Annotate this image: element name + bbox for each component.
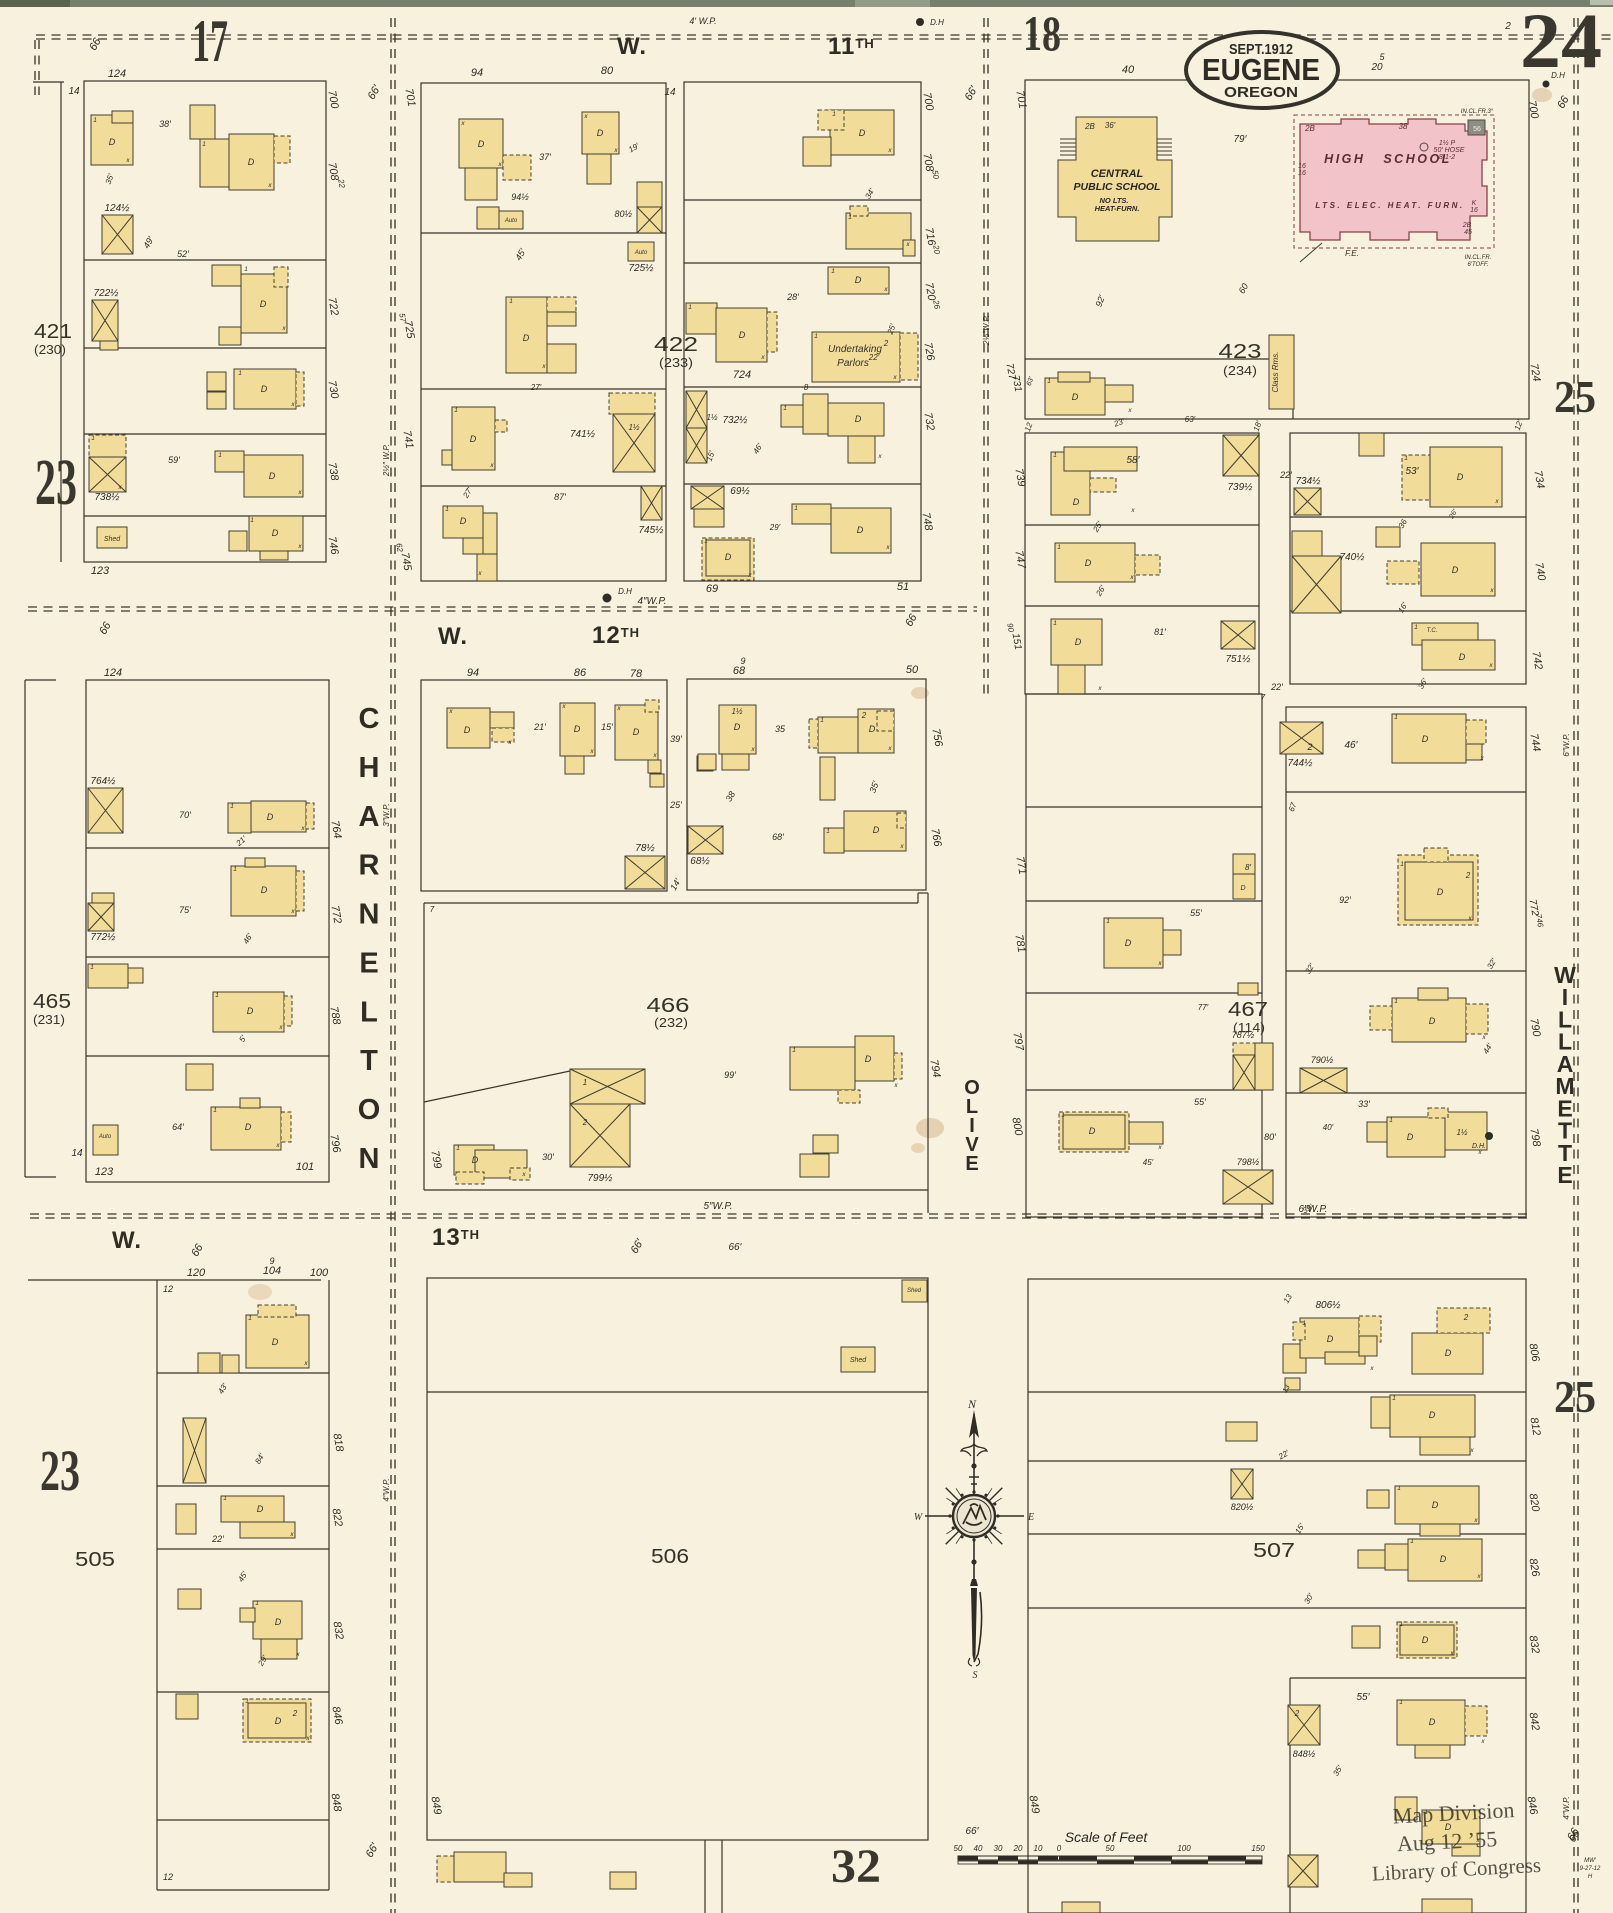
svg-text:6′TOFF.: 6′TOFF. [1468, 262, 1489, 268]
svg-text:D: D [1459, 652, 1466, 662]
svg-text:46′: 46′ [1345, 740, 1359, 751]
svg-text:20: 20 [1370, 62, 1383, 73]
svg-text:D: D [855, 414, 862, 424]
svg-text:53′: 53′ [1406, 466, 1420, 477]
svg-text:1: 1 [90, 964, 94, 971]
svg-text:69½: 69½ [730, 486, 750, 497]
svg-text:79′: 79′ [1234, 134, 1248, 145]
svg-text:1: 1 [704, 538, 708, 545]
svg-text:1: 1 [1404, 455, 1408, 462]
svg-text:1: 1 [223, 1495, 227, 1502]
svg-text:2: 2 [292, 1709, 298, 1718]
svg-text:OREGON: OREGON [1224, 84, 1298, 101]
svg-text:68′: 68′ [772, 832, 784, 842]
svg-text:Shed: Shed [850, 1357, 867, 1364]
svg-text:IN.CL.FR.3°: IN.CL.FR.3° [1461, 109, 1494, 115]
svg-text:22′: 22′ [868, 353, 880, 362]
svg-text:68: 68 [733, 665, 746, 677]
svg-text:F.E.: F.E. [1345, 249, 1359, 258]
svg-text:124½: 124½ [104, 203, 130, 214]
svg-text:80: 80 [601, 65, 614, 77]
svg-text:51: 51 [897, 581, 909, 593]
svg-text:1: 1 [848, 214, 852, 221]
svg-text:PUBLIC SCHOOL: PUBLIC SCHOOL [1074, 181, 1161, 193]
svg-text:22′: 22′ [1270, 682, 1283, 692]
svg-text:2: 2 [1504, 21, 1511, 32]
svg-text:D: D [109, 137, 116, 147]
svg-text:(233): (233) [659, 355, 693, 370]
svg-text:D: D [472, 1155, 479, 1165]
svg-text:422: 422 [654, 334, 698, 356]
svg-text:1: 1 [250, 517, 254, 524]
svg-text:2: 2 [1463, 1313, 1469, 1322]
svg-text:1: 1 [820, 717, 824, 724]
svg-text:35: 35 [775, 724, 786, 734]
svg-text:78½: 78½ [635, 843, 655, 854]
svg-text:741½: 741½ [570, 429, 596, 440]
svg-text:8′: 8′ [1245, 863, 1251, 872]
svg-text:55′: 55′ [1190, 908, 1202, 918]
svg-text:W.: W. [112, 1227, 142, 1254]
svg-text:12: 12 [163, 1872, 173, 1882]
svg-text:78: 78 [630, 668, 643, 680]
svg-text:Class Rms.: Class Rms. [1271, 352, 1280, 393]
svg-text:86: 86 [574, 667, 587, 679]
svg-text:N: N [359, 899, 380, 931]
svg-text:1: 1 [244, 266, 248, 273]
svg-text:2½″W.P.: 2½″W.P. [982, 315, 991, 346]
svg-text:D: D [1075, 637, 1082, 647]
svg-text:D: D [1240, 885, 1245, 892]
svg-text:L: L [360, 996, 378, 1028]
svg-text:1: 1 [832, 111, 836, 118]
svg-text:38′: 38′ [159, 119, 171, 129]
svg-text:D: D [247, 1006, 254, 1016]
svg-text:1: 1 [218, 452, 222, 459]
svg-text:1: 1 [1394, 714, 1398, 721]
svg-text:D: D [734, 722, 741, 732]
svg-text:1: 1 [213, 1107, 217, 1114]
svg-text:D: D [574, 724, 581, 734]
svg-text:D: D [1072, 392, 1079, 402]
svg-text:40′: 40′ [1323, 1123, 1334, 1132]
svg-text:29′: 29′ [769, 523, 781, 532]
svg-text:EUGENE: EUGENE [1202, 52, 1320, 87]
svg-text:1: 1 [255, 1600, 259, 1607]
svg-text:87′: 87′ [554, 492, 566, 502]
svg-text:D: D [261, 885, 268, 895]
svg-text:Auto: Auto [634, 250, 648, 256]
svg-text:466: 466 [647, 995, 690, 1017]
svg-text:104: 104 [263, 1265, 281, 1277]
svg-text:D: D [478, 139, 485, 149]
svg-text:14: 14 [71, 1148, 83, 1159]
svg-text:1: 1 [1057, 544, 1061, 551]
svg-text:421: 421 [34, 321, 72, 343]
svg-text:2B: 2B [1084, 122, 1095, 131]
svg-text:15′: 15′ [601, 722, 613, 732]
svg-text:1: 1 [215, 992, 219, 999]
svg-text:806½: 806½ [1315, 1300, 1341, 1311]
svg-text:1: 1 [456, 1145, 460, 1152]
svg-text:39′: 39′ [670, 734, 682, 744]
svg-text:1½: 1½ [706, 413, 717, 422]
svg-text:16: 16 [1298, 163, 1306, 170]
svg-text:1: 1 [1053, 620, 1057, 627]
svg-text:O: O [358, 1094, 381, 1126]
svg-text:E: E [1557, 1162, 1572, 1188]
svg-text:25′: 25′ [669, 800, 682, 810]
svg-text:D: D [275, 1716, 282, 1726]
svg-text:124: 124 [108, 68, 126, 80]
svg-text:T.C.: T.C. [1427, 628, 1438, 634]
svg-text:77′: 77′ [1198, 1003, 1209, 1012]
svg-text:1: 1 [1053, 452, 1057, 459]
svg-text:1: 1 [814, 333, 818, 340]
svg-text:80′: 80′ [1264, 1132, 1276, 1142]
svg-text:D: D [865, 1054, 872, 1064]
svg-text:D: D [1445, 1348, 1452, 1358]
svg-text:HEAT-FURN.: HEAT-FURN. [1095, 204, 1140, 213]
svg-text:H: H [359, 752, 380, 784]
svg-text:94: 94 [467, 667, 479, 679]
svg-text:(231): (231) [33, 1012, 65, 1027]
svg-text:22′: 22′ [1279, 470, 1292, 480]
svg-text:D: D [597, 128, 604, 138]
svg-text:745½: 745½ [638, 525, 664, 536]
svg-text:45′: 45′ [1143, 1158, 1154, 1167]
svg-text:D: D [523, 333, 530, 343]
svg-text:7: 7 [430, 905, 435, 914]
svg-text:75′: 75′ [179, 905, 191, 915]
svg-text:69: 69 [706, 583, 718, 595]
svg-text:1: 1 [1399, 1699, 1403, 1706]
svg-text:56: 56 [1473, 126, 1481, 133]
svg-text:D: D [859, 128, 866, 138]
svg-text:W.: W. [617, 33, 647, 60]
svg-text:1: 1 [1302, 1320, 1306, 1327]
svg-text:798½: 798½ [1237, 1157, 1260, 1167]
svg-text:23: 23 [40, 1438, 80, 1503]
svg-text:Auto: Auto [98, 1134, 112, 1140]
svg-text:80½: 80½ [614, 209, 632, 219]
svg-text:848½: 848½ [1293, 1749, 1316, 1759]
svg-text:MW′: MW′ [1584, 1858, 1597, 1864]
svg-text:0: 0 [1057, 1844, 1062, 1853]
svg-text:1: 1 [1106, 918, 1110, 925]
svg-text:17: 17 [192, 8, 228, 74]
svg-text:10: 10 [1034, 1844, 1043, 1853]
svg-text:D: D [260, 299, 267, 309]
svg-text:D: D [257, 1504, 264, 1514]
svg-text:33′: 33′ [1358, 1099, 1370, 1109]
svg-text:12: 12 [163, 1284, 173, 1294]
svg-text:A: A [359, 801, 380, 833]
svg-text:18: 18 [1023, 5, 1061, 61]
svg-text:D: D [464, 725, 471, 735]
svg-text:(232): (232) [654, 1015, 688, 1030]
svg-text:D: D [1429, 1410, 1436, 1420]
svg-text:D: D [272, 1337, 279, 1347]
svg-text:1: 1 [826, 828, 830, 835]
svg-text:6″W.P.: 6″W.P. [1562, 733, 1571, 756]
svg-text:N: N [359, 1143, 380, 1175]
svg-text:Parlors: Parlors [837, 358, 869, 369]
svg-text:2: 2 [883, 339, 889, 348]
svg-text:1: 1 [792, 1047, 796, 1054]
svg-text:D: D [1089, 1126, 1096, 1136]
svg-text:D: D [1452, 565, 1459, 575]
svg-text:2: 2 [1465, 871, 1471, 880]
svg-text:9-27-12: 9-27-12 [1580, 1866, 1601, 1872]
svg-text:5″W.P.: 5″W.P. [703, 1201, 732, 1212]
svg-text:1: 1 [248, 1315, 252, 1322]
svg-text:D: D [272, 528, 279, 538]
svg-text:1: 1 [91, 435, 95, 442]
svg-text:467: 467 [1228, 999, 1268, 1021]
svg-text:D: D [269, 471, 276, 481]
svg-text:70′: 70′ [179, 810, 191, 820]
svg-text:4″W.P.: 4″W.P. [382, 1478, 391, 1501]
svg-text:H: H [1588, 1874, 1593, 1880]
svg-text:790½: 790½ [1311, 1055, 1334, 1065]
svg-text:8: 8 [804, 383, 809, 392]
svg-text:2B: 2B [1304, 124, 1315, 133]
svg-text:32: 32 [831, 1840, 881, 1893]
svg-text:725½: 725½ [628, 263, 654, 274]
svg-text:D: D [248, 157, 255, 167]
svg-text:1: 1 [1424, 1809, 1428, 1816]
svg-text:45: 45 [1464, 229, 1472, 236]
svg-text:55′: 55′ [1194, 1097, 1206, 1107]
svg-text:3″W.P.: 3″W.P. [382, 803, 391, 826]
svg-text:101: 101 [296, 1161, 314, 1173]
svg-text:4″W.P.: 4″W.P. [1562, 1796, 1571, 1819]
svg-text:N: N [967, 1397, 977, 1411]
svg-text:1: 1 [831, 268, 835, 275]
svg-text:772½: 772½ [90, 932, 116, 943]
svg-text:68½: 68½ [690, 856, 710, 867]
svg-text:506: 506 [651, 1546, 689, 1568]
svg-text:66′: 66′ [729, 1242, 743, 1253]
svg-text:(230): (230) [34, 342, 66, 357]
svg-text:D: D [869, 724, 876, 734]
svg-text:(234): (234) [1223, 363, 1257, 378]
svg-text:1: 1 [688, 304, 692, 311]
svg-text:1: 1 [1397, 1485, 1401, 1492]
svg-text:38: 38 [1399, 122, 1408, 131]
svg-text:1½: 1½ [731, 707, 742, 716]
svg-text:1: 1 [1392, 1395, 1396, 1402]
svg-text:T: T [360, 1045, 378, 1077]
svg-text:4″W.P.: 4″W.P. [637, 596, 666, 607]
svg-text:120: 120 [187, 1267, 206, 1279]
svg-text:D: D [633, 727, 640, 737]
svg-text:16: 16 [1298, 170, 1306, 177]
svg-text:30: 30 [994, 1844, 1003, 1853]
svg-text:820½: 820½ [1231, 1502, 1254, 1512]
svg-text:27′: 27′ [530, 383, 542, 392]
svg-text:D: D [1125, 938, 1132, 948]
svg-text:E: E [1027, 1512, 1034, 1523]
svg-text:1: 1 [1410, 1538, 1414, 1545]
svg-text:D: D [1429, 1016, 1436, 1026]
svg-text:D: D [873, 825, 880, 835]
svg-text:94: 94 [471, 67, 483, 79]
svg-text:2: 2 [1306, 742, 1312, 752]
svg-text:1: 1 [783, 405, 787, 412]
svg-text:7: 7 [1261, 693, 1266, 702]
svg-text:55′: 55′ [1357, 1692, 1371, 1703]
svg-text:1½ P: 1½ P [1439, 139, 1456, 147]
svg-text:Shed: Shed [104, 536, 121, 543]
svg-text:739½: 739½ [1227, 482, 1253, 493]
svg-text:1: 1 [1414, 624, 1418, 631]
svg-text:66′: 66′ [966, 1826, 980, 1837]
svg-text:D: D [245, 1122, 252, 1132]
svg-text:734½: 734½ [1295, 476, 1321, 487]
svg-text:1: 1 [238, 370, 242, 377]
svg-text:37′: 37′ [539, 152, 551, 162]
svg-text:1½: 1½ [628, 423, 639, 432]
svg-text:1: 1 [1389, 1117, 1393, 1124]
svg-text:2: 2 [861, 711, 867, 720]
svg-text:1: 1 [1400, 861, 1404, 868]
svg-text:1: 1 [233, 866, 237, 873]
svg-text:Scale of Feet: Scale of Feet [1065, 1829, 1149, 1845]
svg-text:123: 123 [91, 565, 110, 577]
svg-text:D: D [1437, 887, 1444, 897]
svg-text:100: 100 [310, 1267, 329, 1279]
svg-text:40: 40 [974, 1844, 983, 1853]
svg-text:LTS. ELEC. HEAT. FURN.: LTS. ELEC. HEAT. FURN. [1315, 201, 1464, 210]
svg-text:63′: 63′ [1185, 415, 1196, 424]
svg-text:D: D [855, 275, 862, 285]
svg-text:(114): (114) [1233, 1020, 1265, 1035]
svg-text:D.H: D.H [1551, 71, 1565, 80]
svg-text:D: D [470, 434, 477, 444]
svg-text:1: 1 [445, 506, 449, 513]
svg-text:D: D [1327, 1334, 1334, 1344]
svg-text:D: D [857, 525, 864, 535]
svg-text:722½: 722½ [93, 288, 119, 299]
svg-text:D: D [275, 1617, 282, 1627]
svg-text:D: D [1073, 497, 1080, 507]
svg-text:50: 50 [906, 664, 919, 676]
svg-text:751½: 751½ [1225, 654, 1251, 665]
svg-text:124: 124 [104, 667, 122, 679]
svg-text:52′: 52′ [177, 249, 189, 259]
svg-text:30′: 30′ [542, 1152, 554, 1162]
svg-text:64′: 64′ [172, 1122, 184, 1132]
svg-text:C: C [359, 703, 380, 735]
svg-text:100: 100 [1177, 1844, 1191, 1853]
svg-text:HIGH SCHOOL: HIGH SCHOOL [1324, 152, 1452, 166]
svg-text:744½: 744½ [1287, 758, 1313, 769]
svg-text:23: 23 [35, 446, 77, 519]
svg-text:92′: 92′ [1339, 895, 1351, 905]
svg-text:1: 1 [794, 505, 798, 512]
svg-text:2B: 2B [1462, 222, 1472, 229]
svg-text:D: D [1440, 1554, 1447, 1564]
svg-text:K: K [1472, 200, 1477, 207]
svg-text:1: 1 [454, 407, 458, 414]
svg-text:1: 1 [1399, 1621, 1403, 1628]
svg-text:D: D [725, 552, 732, 562]
svg-text:D: D [267, 812, 274, 822]
svg-text:732½: 732½ [722, 415, 748, 426]
svg-text:123: 123 [95, 1166, 114, 1178]
svg-text:423: 423 [1219, 341, 1262, 363]
svg-text:1: 1 [1047, 378, 1051, 385]
svg-text:22′: 22′ [211, 1534, 224, 1544]
svg-text:507: 507 [1253, 1540, 1295, 1562]
svg-text:D: D [261, 384, 268, 394]
svg-text:D: D [1407, 1132, 1414, 1142]
svg-text:1: 1 [93, 117, 97, 124]
svg-text:25: 25 [1554, 371, 1596, 422]
svg-text:1: 1 [245, 1698, 249, 1705]
svg-text:50: 50 [1106, 1844, 1115, 1853]
svg-text:50: 50 [954, 1844, 963, 1853]
svg-text:20: 20 [1013, 1844, 1023, 1853]
svg-text:59′: 59′ [168, 455, 180, 465]
svg-text:36′: 36′ [1105, 121, 1116, 130]
svg-text:D: D [1457, 472, 1464, 482]
svg-text:94½: 94½ [511, 192, 529, 202]
svg-text:505: 505 [75, 1549, 115, 1571]
svg-text:1: 1 [1061, 1112, 1065, 1119]
svg-text:D: D [1429, 1717, 1436, 1727]
svg-text:D: D [739, 330, 746, 340]
svg-text:99′: 99′ [724, 1070, 736, 1080]
svg-text:1: 1 [509, 298, 513, 305]
svg-text:465: 465 [33, 991, 71, 1013]
svg-text:799½: 799½ [587, 1173, 613, 1184]
svg-text:D.H: D.H [618, 587, 632, 596]
svg-text:E: E [965, 1153, 978, 1175]
svg-text:W.: W. [438, 623, 468, 650]
svg-text:D: D [1422, 734, 1429, 744]
svg-text:2: 2 [1294, 1709, 1300, 1718]
svg-text:2½″ W.P.: 2½″ W.P. [382, 444, 391, 477]
svg-text:738½: 738½ [94, 492, 120, 503]
svg-text:Auto: Auto [504, 218, 518, 224]
svg-text:Shed: Shed [907, 1288, 922, 1294]
svg-text:81′: 81′ [1154, 627, 1166, 637]
svg-text:CENTRAL: CENTRAL [1091, 168, 1144, 180]
svg-text:1: 1 [583, 1078, 587, 1087]
svg-text:D: D [1432, 1500, 1439, 1510]
svg-text:14: 14 [664, 87, 676, 98]
svg-text:28′: 28′ [786, 292, 799, 302]
svg-text:58′: 58′ [1127, 455, 1141, 466]
svg-text:D: D [1085, 558, 1092, 568]
svg-text:50′ HOSE: 50′ HOSE [1434, 147, 1465, 154]
svg-text:1: 1 [230, 803, 234, 810]
svg-text:4′ W.P.: 4′ W.P. [689, 16, 716, 26]
svg-text:150: 150 [1251, 1844, 1265, 1853]
svg-text:764½: 764½ [90, 776, 116, 787]
svg-text:1½: 1½ [1456, 1128, 1467, 1137]
svg-text:1: 1 [1394, 998, 1398, 1005]
svg-text:2: 2 [582, 1118, 588, 1127]
svg-text:14: 14 [68, 86, 80, 97]
svg-text:S: S [973, 1670, 978, 1681]
svg-text:25: 25 [1554, 1371, 1596, 1422]
svg-text:R: R [359, 850, 380, 882]
svg-text:D: D [1422, 1635, 1429, 1645]
